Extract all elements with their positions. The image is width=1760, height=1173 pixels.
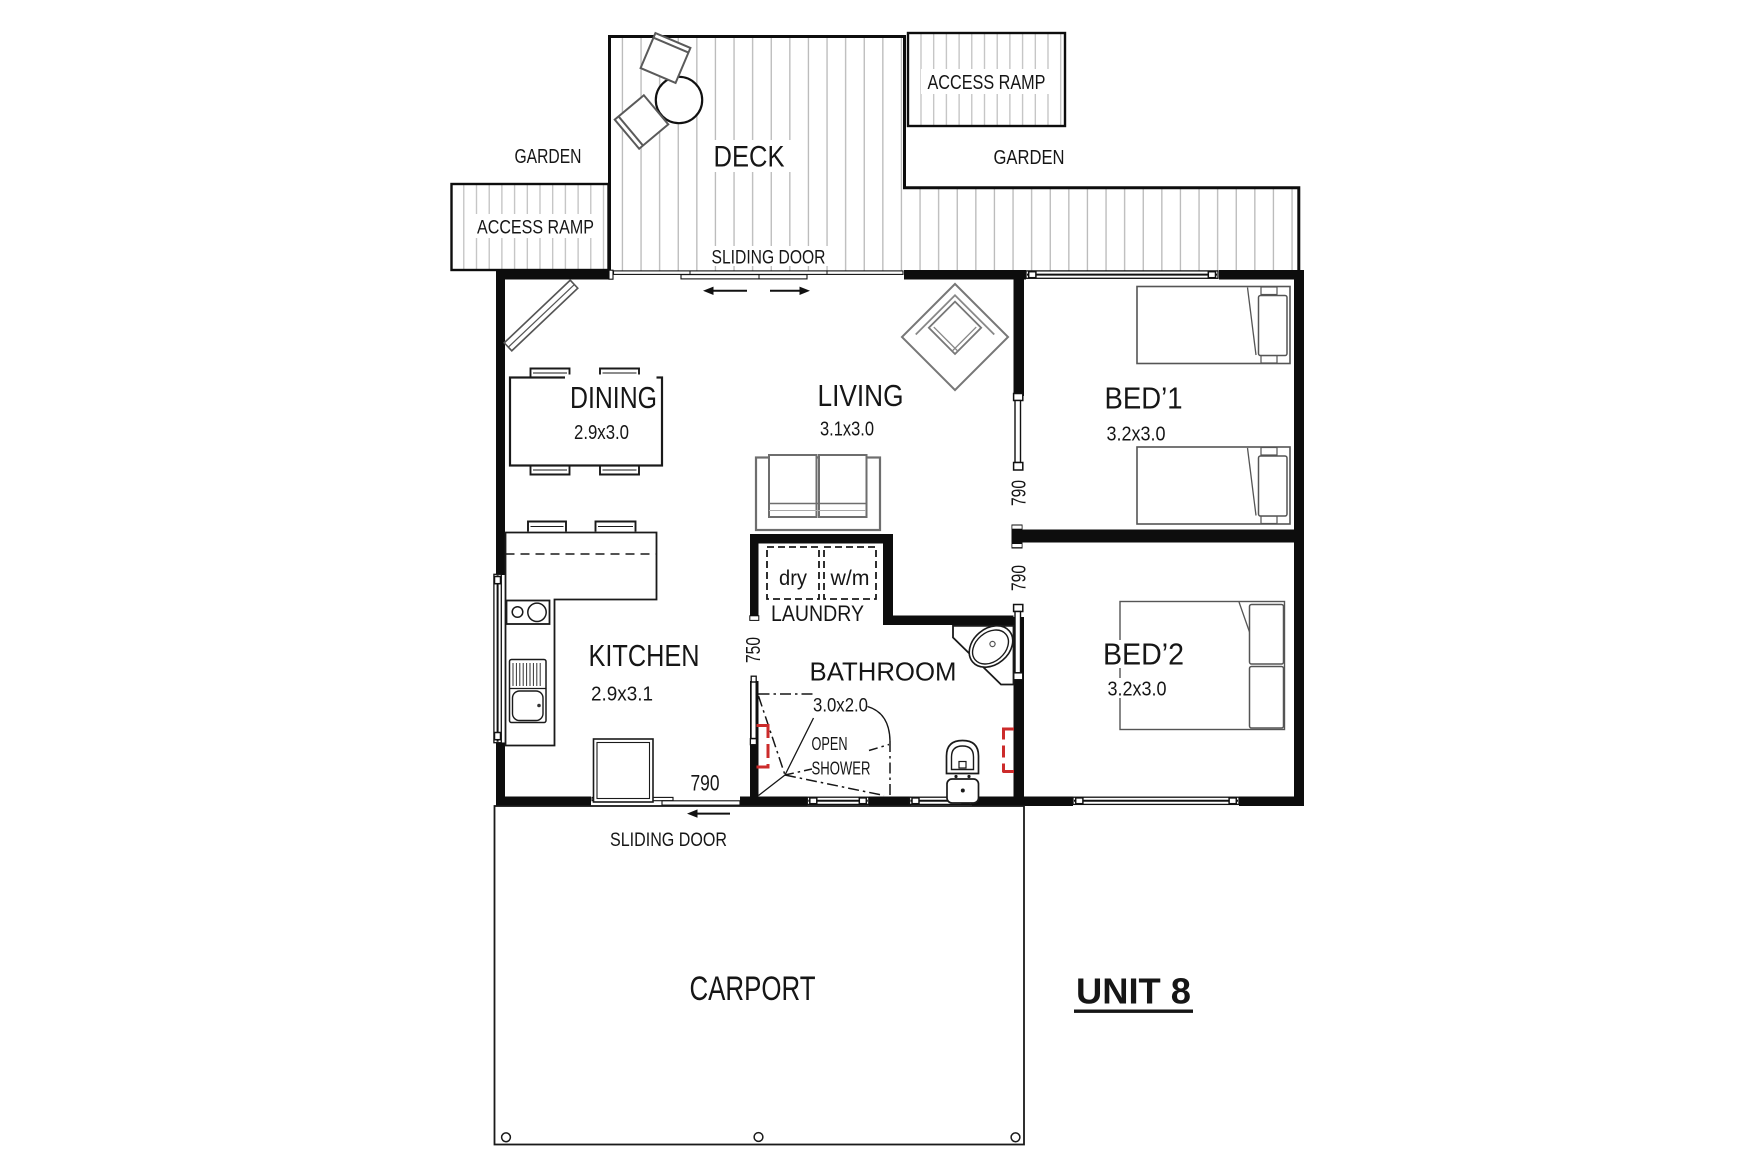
svg-text:GARDEN: GARDEN bbox=[994, 146, 1065, 169]
svg-text:dry: dry bbox=[779, 567, 807, 590]
svg-text:OPEN: OPEN bbox=[812, 734, 848, 754]
svg-text:SHOWER: SHOWER bbox=[812, 758, 871, 779]
svg-text:2.9x3.1: 2.9x3.1 bbox=[591, 684, 653, 706]
svg-text:LIVING: LIVING bbox=[818, 378, 904, 413]
svg-text:w/m: w/m bbox=[829, 567, 869, 590]
svg-text:BED’1: BED’1 bbox=[1105, 381, 1183, 416]
svg-text:DINING: DINING bbox=[570, 380, 657, 415]
svg-text:3.2x3.0: 3.2x3.0 bbox=[1107, 424, 1166, 446]
svg-text:BED’2: BED’2 bbox=[1103, 637, 1184, 672]
svg-text:SLIDING DOOR: SLIDING DOOR bbox=[712, 248, 826, 269]
svg-text:CARPORT: CARPORT bbox=[690, 970, 816, 1008]
svg-text:2.9x3.0: 2.9x3.0 bbox=[574, 422, 629, 444]
svg-text:KITCHEN: KITCHEN bbox=[589, 638, 700, 673]
svg-text:3.0x2.0: 3.0x2.0 bbox=[813, 696, 868, 717]
svg-text:SLIDING DOOR: SLIDING DOOR bbox=[610, 830, 727, 851]
svg-text:UNIT 8: UNIT 8 bbox=[1076, 971, 1191, 1012]
svg-text:ACCESS RAMP: ACCESS RAMP bbox=[928, 71, 1046, 94]
svg-text:3.2x3.0: 3.2x3.0 bbox=[1108, 679, 1167, 701]
svg-text:750: 750 bbox=[743, 637, 765, 663]
svg-text:GARDEN: GARDEN bbox=[515, 145, 582, 168]
svg-text:ACCESS RAMP: ACCESS RAMP bbox=[477, 218, 594, 239]
svg-text:790: 790 bbox=[691, 771, 720, 796]
svg-text:790: 790 bbox=[1008, 565, 1031, 591]
svg-text:BATHROOM: BATHROOM bbox=[810, 657, 957, 687]
svg-text:DECK: DECK bbox=[714, 141, 785, 174]
svg-text:LAUNDRY: LAUNDRY bbox=[771, 601, 864, 626]
svg-text:3.1x3.0: 3.1x3.0 bbox=[820, 419, 874, 441]
svg-text:790: 790 bbox=[1008, 480, 1031, 506]
